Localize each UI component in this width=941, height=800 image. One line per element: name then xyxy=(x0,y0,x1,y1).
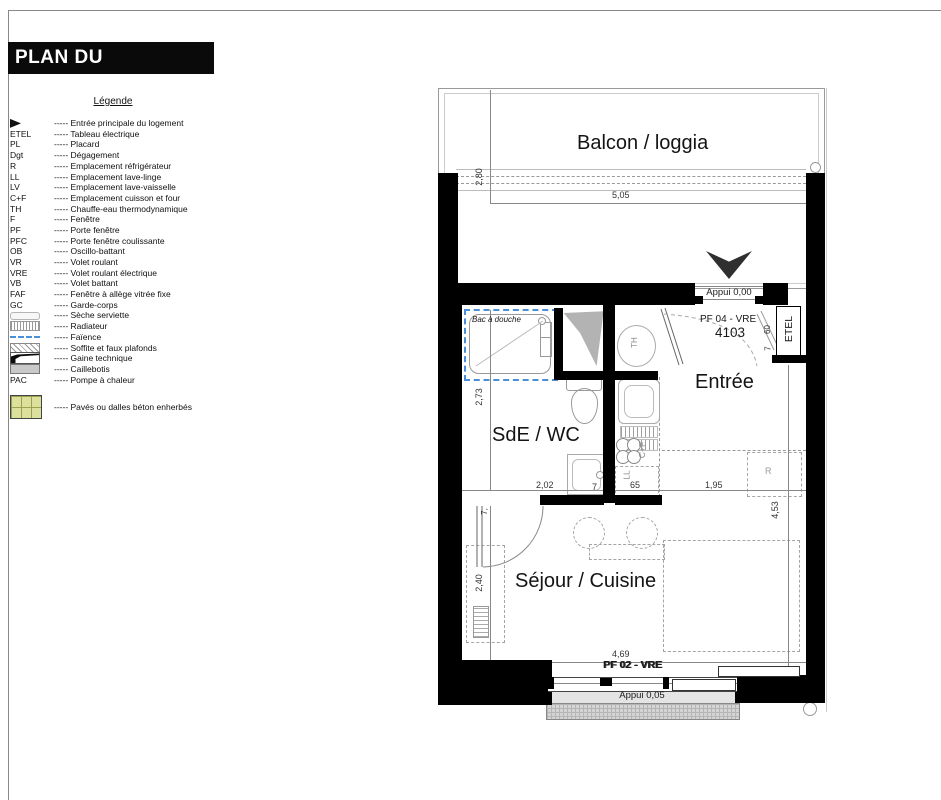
fridge-label: R xyxy=(765,466,772,476)
appui-bottom-label: Appui 0,05 xyxy=(546,690,738,701)
dim-right-height: 4,53 xyxy=(770,501,780,519)
dim-living-width: 4,69 xyxy=(612,649,630,659)
water-heater-label: TH xyxy=(630,337,639,348)
appui-top-label: Appui 0,00 xyxy=(697,287,761,298)
dim-door-wall-7: 7, xyxy=(480,508,489,515)
entry-door-leaf xyxy=(665,308,683,364)
room-label-bathroom: SdE / WC xyxy=(492,424,580,447)
dim-balcony-depth: 2,80 xyxy=(474,168,484,186)
dim-wall-7: 7 xyxy=(592,482,597,492)
plan-document-page: PLAN DU LOGEMENT Légende ----- Entrée pr… xyxy=(0,0,941,800)
dim-line xyxy=(490,310,491,490)
window-jamb xyxy=(663,677,669,689)
shower-diagonal xyxy=(476,321,543,366)
dim-line xyxy=(462,490,806,491)
dim-kitchen-65: 65 xyxy=(630,480,640,490)
wall xyxy=(438,283,462,677)
wall xyxy=(806,173,825,677)
dim-line xyxy=(788,365,789,677)
wall xyxy=(615,495,662,505)
wall xyxy=(540,495,604,505)
washer-label: LL xyxy=(622,470,632,479)
dim-living-left: 2,40 xyxy=(474,574,484,592)
room-label-entry: Entrée xyxy=(695,371,754,394)
wall xyxy=(763,283,788,305)
wall xyxy=(438,283,695,305)
entry-threshold-line xyxy=(695,299,763,300)
dim-etel-60: 60 xyxy=(763,325,772,334)
dim-line xyxy=(490,203,816,204)
dim-bath-height: 2,73 xyxy=(474,388,484,406)
dim-line xyxy=(490,90,491,203)
wall xyxy=(735,675,825,703)
living-door-swing xyxy=(483,506,543,567)
wall xyxy=(603,305,615,503)
wall xyxy=(438,660,552,705)
room-label-balcony: Balcon / loggia xyxy=(577,132,708,155)
dim-etel-7: 7 xyxy=(764,346,773,350)
dim-bath-width: 2,02 xyxy=(536,480,554,490)
wall xyxy=(438,173,458,287)
window-pane xyxy=(718,666,800,677)
dim-balcony-width: 5,05 xyxy=(612,190,630,200)
wall xyxy=(772,355,806,363)
wall xyxy=(554,308,563,380)
room-label-living: Séjour / Cuisine xyxy=(515,570,656,593)
dim-line xyxy=(490,506,491,660)
cooker-label: C+F xyxy=(637,442,647,458)
unit-number: 4103 xyxy=(715,325,745,340)
door-top-label: PF 04 - VRE xyxy=(700,314,756,325)
shower-tray-label: Bac à douche xyxy=(472,315,521,324)
door-bottom-label: PF 02 - VRE xyxy=(603,659,662,671)
window-jamb xyxy=(546,677,554,689)
window-jamb xyxy=(600,678,612,686)
etel-label: ETEL xyxy=(783,316,795,342)
entry-door-leaf xyxy=(661,309,679,365)
dim-entry-width: 1,95 xyxy=(705,480,723,490)
